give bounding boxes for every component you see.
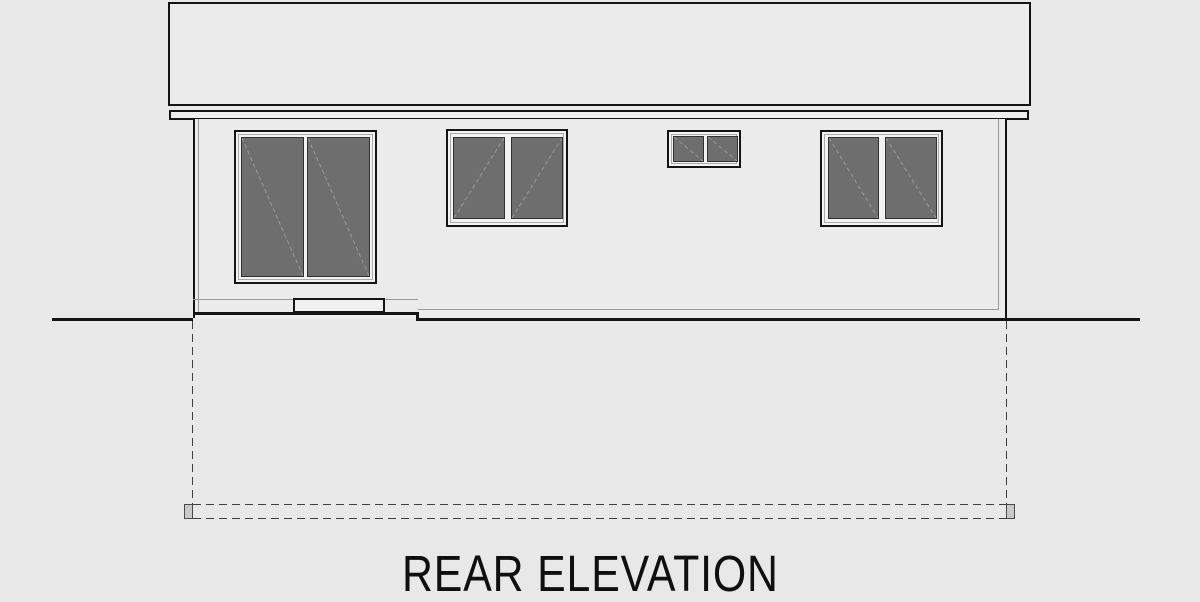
foundation-wall-right-dashed — [1006, 321, 1007, 504]
corner-trim-right — [998, 119, 999, 309]
elevation-drawing: REAR ELEVATION — [0, 0, 1200, 600]
siding-bottom-line-right — [418, 309, 999, 310]
foundation-wall-left-dashed — [192, 321, 193, 504]
glazing-diagonal-icon — [708, 137, 737, 161]
window-left-pane-left — [453, 137, 505, 219]
window-left-pane-right — [511, 137, 563, 219]
corner-trim-left — [198, 119, 199, 312]
drawing-title: REAR ELEVATION — [402, 550, 738, 598]
footing-end-left — [184, 504, 193, 519]
grade-line-left — [52, 318, 193, 321]
glazing-diagonal-icon — [886, 138, 936, 218]
window-small-pane-right — [707, 136, 738, 162]
glazing-diagonal-icon — [674, 137, 703, 161]
roof-slab — [168, 2, 1031, 106]
sliding-door-panel-left — [241, 137, 304, 277]
glazing-diagonal-icon — [308, 138, 369, 276]
glazing-diagonal-icon — [512, 138, 562, 218]
glazing-diagonal-icon — [242, 138, 303, 276]
window-small-pane-left — [673, 136, 704, 162]
door-threshold — [293, 298, 385, 313]
footing-end-right — [1006, 504, 1015, 519]
footing-top-dashed — [193, 504, 1006, 505]
glazing-diagonal-icon — [454, 138, 504, 218]
grade-line-right — [418, 318, 1140, 321]
sliding-door-panel-right — [307, 137, 370, 277]
window-right-pane-right — [885, 137, 937, 219]
footing-bottom-dashed — [193, 518, 1006, 519]
window-right-pane-left — [828, 137, 879, 219]
glazing-diagonal-icon — [829, 138, 878, 218]
